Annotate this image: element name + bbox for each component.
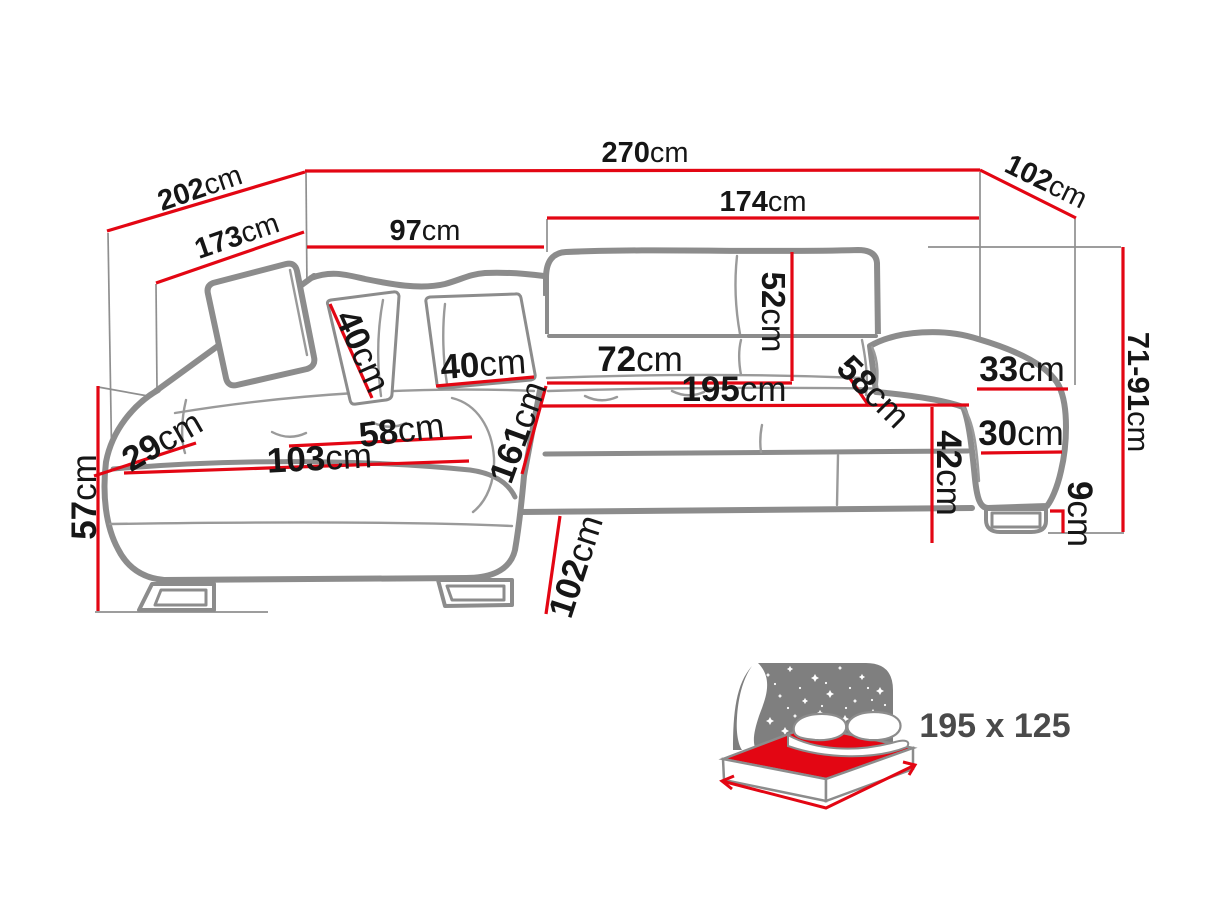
dimension-line-total-width bbox=[305, 170, 980, 171]
bed-pillow-1 bbox=[794, 714, 847, 740]
sofa-dimension-diagram: 195 x 125 270cm102cm202cm173cm97cm174cm5… bbox=[0, 0, 1214, 910]
star-dot bbox=[821, 705, 823, 707]
dimension-label-diagonal-outer-left: 202cm bbox=[154, 159, 247, 218]
star-dot bbox=[849, 687, 851, 689]
star-dot bbox=[871, 699, 873, 701]
dimension-label-total-height: 71-91cm bbox=[1121, 332, 1156, 453]
dimension-label-backrest-height: 52cm bbox=[755, 272, 792, 353]
sleeping-area-size: 195 x 125 bbox=[919, 707, 1070, 745]
star-dot bbox=[787, 707, 789, 709]
bed-pillow-2 bbox=[848, 712, 901, 740]
dimension-label-depth-top-right: 102cm bbox=[1000, 148, 1092, 215]
dimension-label-pillow-right: 40cm bbox=[439, 342, 527, 387]
dimension-label-leg-height: 9cm bbox=[1060, 481, 1099, 547]
dimension-label-chaise-front-width: 103cm bbox=[266, 436, 373, 480]
sofa-backrest bbox=[546, 250, 878, 338]
dimension-label-back-section-width: 97cm bbox=[390, 215, 461, 247]
star-dot bbox=[799, 687, 801, 689]
bed-curtain-sliver bbox=[733, 666, 752, 750]
star-dot bbox=[825, 682, 827, 684]
seat-front-lip bbox=[545, 451, 968, 454]
dimension-label-armrest-front-width: 30cm bbox=[978, 414, 1064, 453]
extension-line-inner-left bbox=[156, 284, 157, 388]
headrest bbox=[208, 264, 315, 386]
dimension-label-side-height: 57cm bbox=[65, 454, 104, 540]
star-dot bbox=[845, 707, 847, 709]
dimension-label-sleeping-length: 195cm bbox=[681, 370, 786, 409]
extension-line-side-top bbox=[98, 387, 148, 396]
sleeping-area-icon: 195 x 125 bbox=[722, 663, 1071, 808]
dimension-label-seat-width-total: 174cm bbox=[719, 186, 806, 218]
dimension-label-armrest-top-width: 33cm bbox=[979, 350, 1065, 389]
base-bottom-edge bbox=[520, 508, 972, 512]
star-dot bbox=[867, 687, 869, 689]
seat-seam-3 bbox=[837, 455, 838, 505]
star-dot bbox=[884, 704, 886, 706]
dimension-label-total-width: 270cm bbox=[601, 137, 688, 169]
star-dot bbox=[774, 683, 776, 685]
diagram-canvas: 195 x 125 270cm102cm202cm173cm97cm174cm5… bbox=[0, 0, 1214, 910]
extension-line-left-corner bbox=[306, 172, 307, 289]
dimension-label-seat-depth-right: 72cm bbox=[597, 340, 683, 379]
dimension-label-seat-front-height: 42cm bbox=[929, 430, 968, 516]
dimension-label-diagonal-inner-left: 173cm bbox=[191, 207, 284, 266]
